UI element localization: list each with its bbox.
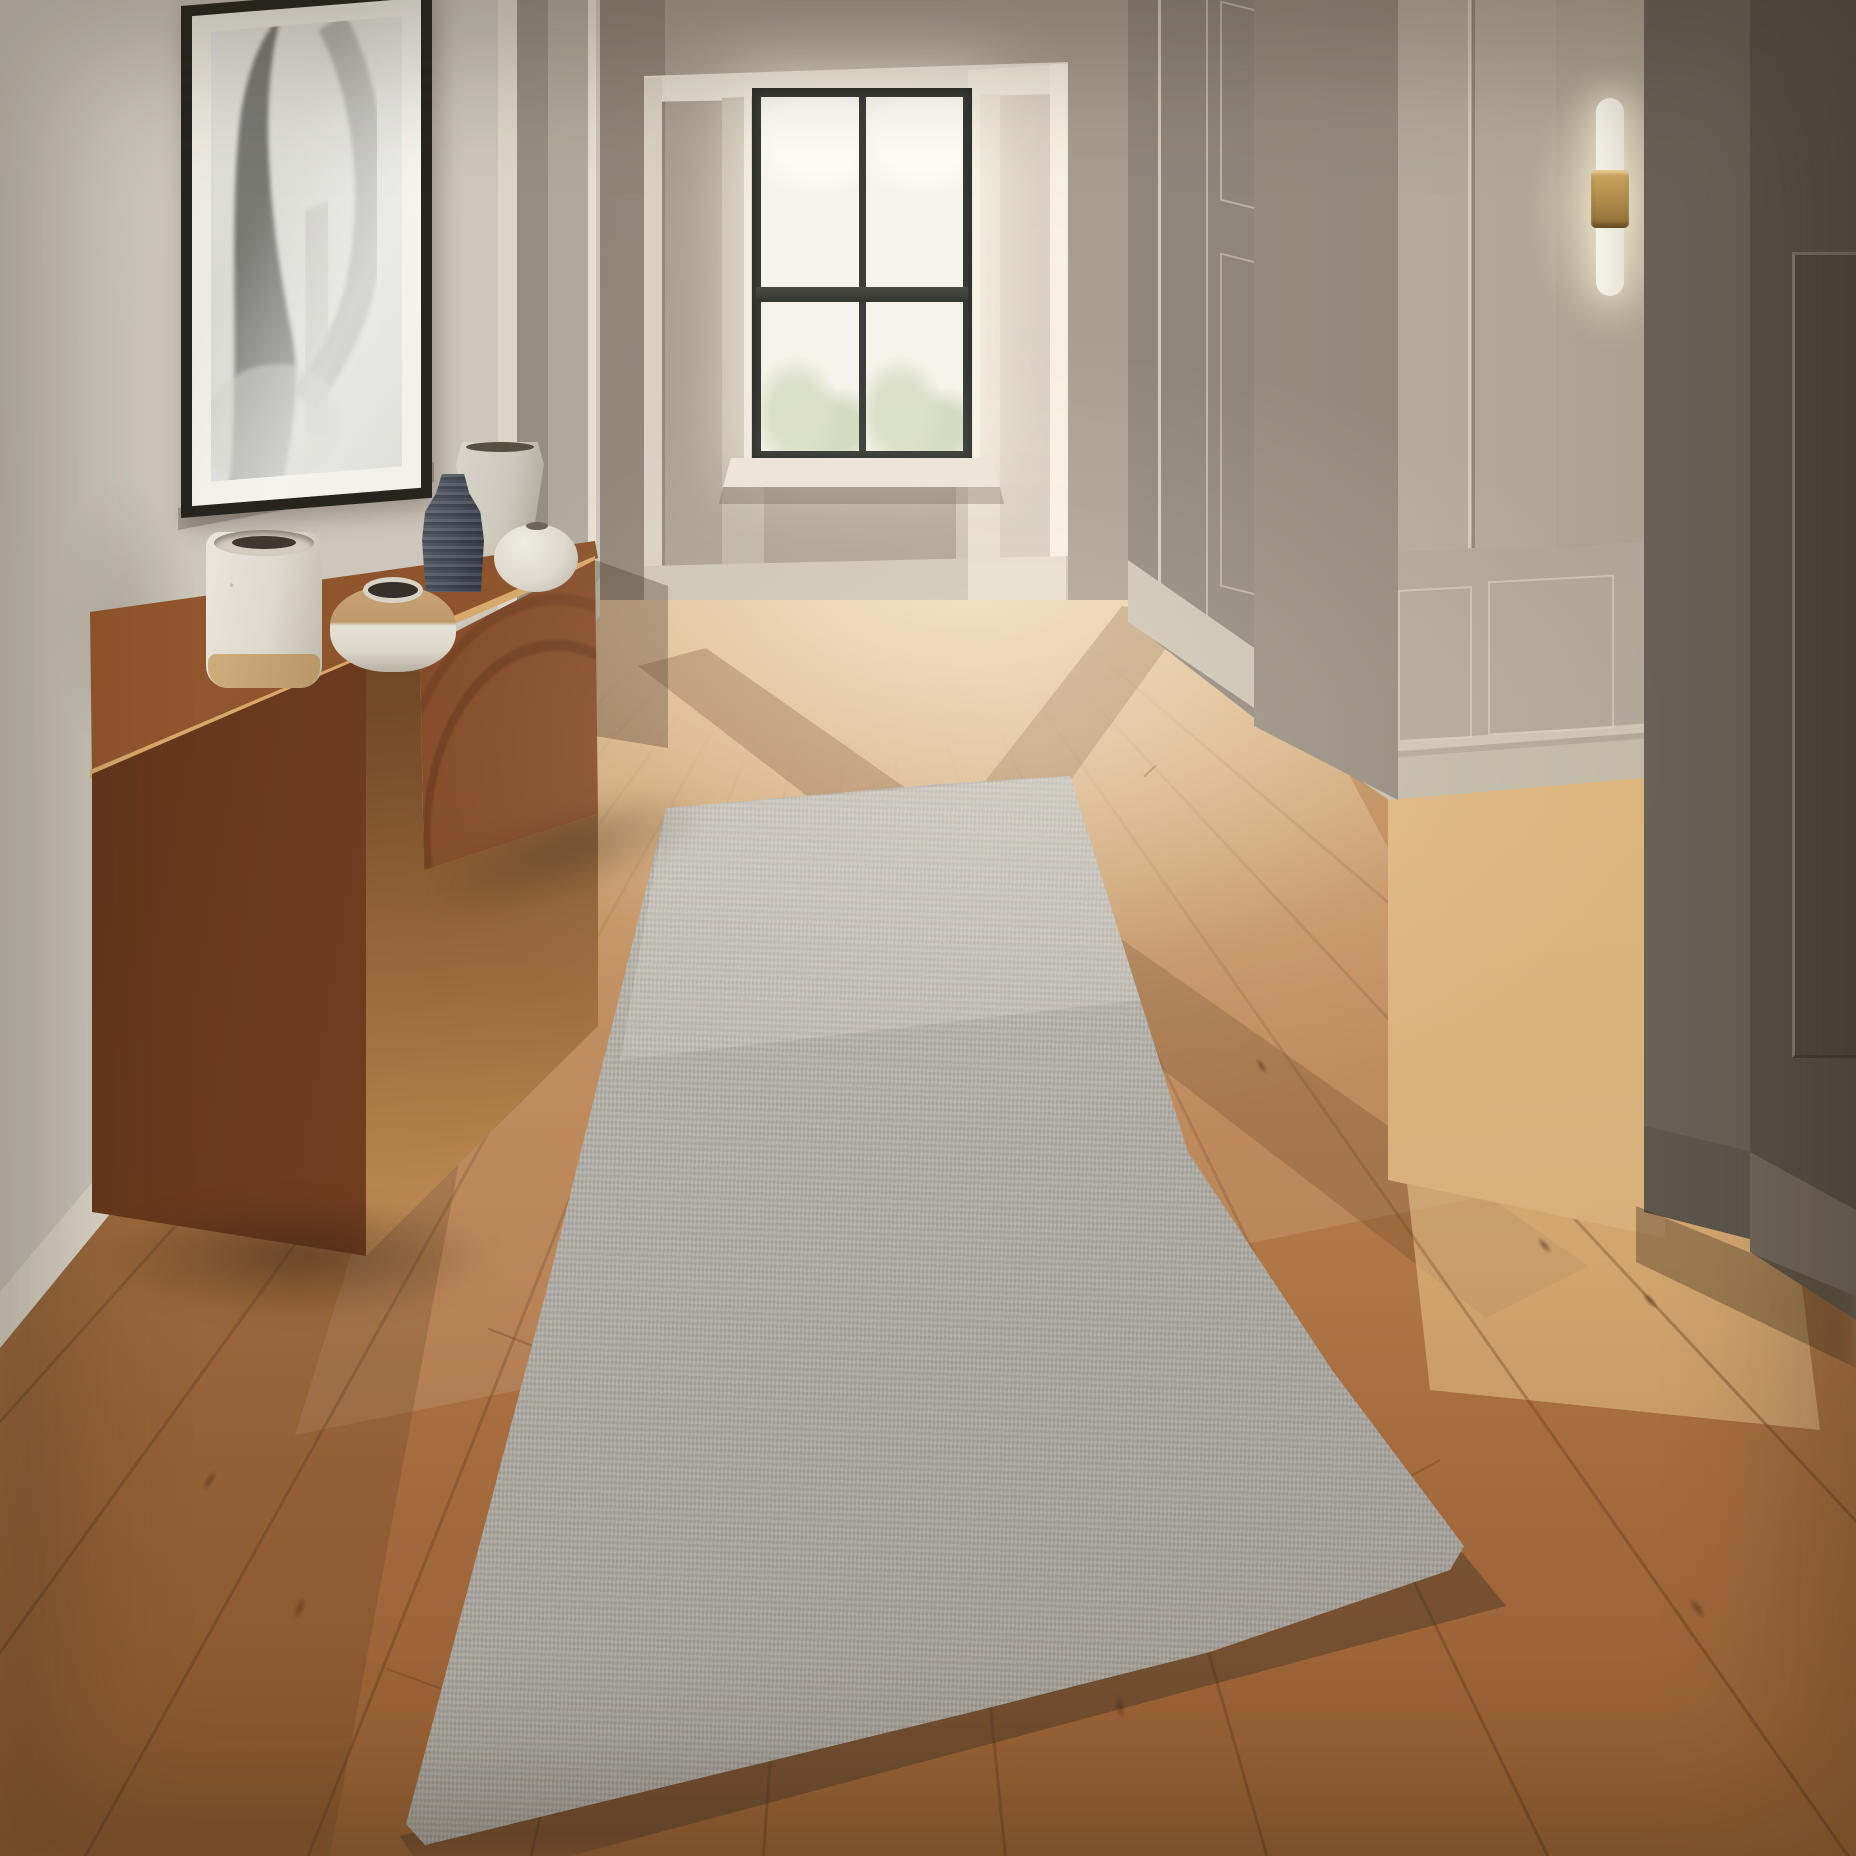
console-floor-shadow [96,1196,496,1316]
rug-block-i [977,1519,1021,1584]
rug-gap [751,1196,763,1197]
rug-block-i [807,1362,843,1422]
rug-block-i [943,1159,967,1206]
tall-cream-vase [206,532,322,688]
rug-gap [1017,1550,1036,1551]
rug-gap [918,1184,930,1185]
rug-gap [1020,1237,1035,1238]
window-casing-left [744,84,751,464]
rug-gap [954,1036,964,1037]
rug-block-s [869,1540,911,1596]
rug-gap [1157,1463,1178,1464]
rug-gap [800,1193,812,1194]
rug-gap [1056,1470,1077,1471]
rug-gap [998,1381,1013,1382]
rug-block-s [1142,1430,1182,1445]
rug-block-i [960,1125,986,1136]
rug-block-s [793,1247,821,1259]
rug-gap [908,1558,927,1559]
rug-row-blocks [681,1260,1189,1339]
rug-gap [989,1295,1004,1296]
rug-row-dashes [654,1425,1260,1479]
panel-stile-highlight [1158,0,1161,600]
rug-gap [868,1390,883,1391]
rug-gap [1056,1377,1071,1378]
rug-block-s [903,1028,923,1054]
vase-mouth [232,536,296,549]
rug-block-i [813,1530,856,1589]
rug-block-i [1050,1155,1074,1195]
rug-gap [986,1449,1006,1450]
rug-block-r [932,1072,957,1104]
rug-block-i [969,1354,998,1411]
rug-gap [882,1187,894,1188]
rug-block-i [1178,1454,1218,1469]
rug-gap [774,1490,795,1491]
rug-gap [831,1140,844,1141]
rug-gap [694,1495,715,1496]
rug-gap [915,1480,936,1481]
rug-gap [1036,1126,1049,1127]
rug-gap [893,1040,903,1041]
rug-gap [1127,1543,1146,1544]
rug-gap [882,1136,895,1137]
rug-gap [850,1458,870,1459]
rug-gap [1023,1126,1036,1127]
rug-gap [764,1255,779,1256]
rug-gap [1062,1234,1077,1235]
rug-block-i [1221,1425,1259,1440]
opening-reveal-line [1468,0,1471,548]
rug-gap [934,1133,947,1134]
rug-gap [771,1464,791,1465]
rug-block-g [857,1077,877,1109]
rug-block-i [1088,1116,1113,1127]
rug-gap [1108,1544,1127,1545]
rug-block-r [741,1289,773,1329]
rug-block-s [1050,1119,1075,1130]
rug-block-s [835,1169,859,1211]
rug-gap [821,1251,836,1252]
rug-gap [1123,1439,1143,1440]
rug-block-i [1238,1450,1278,1465]
rug-gap [1104,1287,1119,1288]
rug-gap [796,1395,811,1396]
rug-block-g [1000,1160,1028,1198]
rug-gap [742,1146,755,1147]
rug-block-i [681,1294,714,1331]
rug-gap [829,1460,849,1461]
rug-block-r [1269,1500,1317,1566]
rug-block-s [944,1275,978,1321]
rug-gap [1065,1443,1085,1444]
rug-block-i [735,1485,775,1500]
rug-gap [1076,1469,1097,1470]
rug-block-s [861,1032,884,1056]
rug-block-s [1181,1508,1218,1571]
rug-gap [1181,1435,1201,1436]
rug-block-i [809,1169,837,1207]
rug-gap [1128,1372,1143,1373]
rug-block-r [649,1491,695,1506]
rug-block-r [713,1142,742,1153]
rug-gap [853,1562,872,1563]
rug-gap [844,1139,857,1140]
rug-block-i [921,1024,944,1053]
rug-gap [721,1258,736,1259]
rug-block-s [1107,1150,1135,1192]
rug-block-s [857,1133,883,1144]
rug-block-i [964,1070,987,1100]
rug-gap [693,1469,713,1470]
rug-block-s [869,1449,909,1464]
rug-block-i [895,1130,921,1141]
rug-gap [690,1573,709,1574]
rug-block-i [875,1475,916,1490]
rug-block-i [738,1367,767,1424]
rug-gap [966,1450,986,1451]
rug-block-i [992,1233,1020,1245]
rug-gap [990,1179,1002,1180]
rug-block-s [788,1295,817,1332]
rug-gap [1217,1459,1238,1460]
window-pane [761,97,859,287]
rug-gap [863,1248,878,1249]
rug-gap [726,1313,741,1314]
rug-gap [882,1041,892,1042]
rug-gap [793,1143,806,1144]
rug-block-i [770,1083,789,1112]
rug-gap [947,1132,960,1133]
rug-block-i [1034,1230,1062,1242]
rug-block-s [1022,1070,1044,1097]
double-hung-window [752,88,972,460]
vase-body [330,586,456,672]
rug-gap [755,1145,768,1146]
rug-gap [832,1044,842,1045]
vase-body [494,524,578,592]
rug-gap [834,1486,855,1487]
rug-block-i [735,1251,764,1263]
rug-block-i [875,1078,897,1105]
rug-gap [963,1241,978,1242]
rug-block-i [994,1018,1014,1047]
rug-block-s [1004,1271,1033,1308]
rug-block-i [1071,1153,1100,1197]
squat-two-tone-vase [330,586,456,672]
rug-block-s [934,1237,963,1249]
rug-block-r [1044,1020,1069,1043]
rug-gap [1098,1172,1110,1173]
rug-row-dashes [649,1450,1272,1506]
rug-block-i [693,1254,722,1266]
rug-block-i [925,1357,954,1417]
vase-mouth [526,522,548,530]
rug-gap [671,1575,690,1576]
rug-block-i [768,1139,793,1150]
rug-gap [714,1494,735,1495]
rug-block-i [874,1280,903,1324]
rug-block-i [1168,1343,1202,1394]
rug-gap [895,1090,905,1091]
rug-gap [975,1296,990,1297]
vase-mouth [368,582,418,598]
foreground-panel-molding [1792,252,1856,1058]
framed-abstract-artwork [181,0,432,518]
rug-gap [996,1474,1017,1475]
rug-block-i [741,1539,784,1601]
rug-block-s [1051,1067,1073,1092]
rug-gap [931,1184,943,1185]
rug-block-s [812,1037,832,1060]
rug-gap [860,1304,875,1305]
rug-row-blocks [633,1498,1311,1612]
rug-block-i [892,1164,921,1208]
rug-block-i [894,1361,929,1415]
rug-block-s [956,1470,996,1485]
rug-block-i [1012,1348,1041,1402]
rug-block-s [998,1123,1024,1134]
rug-block-i [1133,1223,1162,1235]
rug-block-i [835,1244,863,1256]
rug-gap [931,1299,946,1300]
round-orb-vase [494,524,578,592]
rug-gap [799,1097,809,1098]
rug-row-blocks [703,1148,1135,1223]
rug-block-i [927,1445,967,1460]
rug-block-i [1072,1512,1109,1581]
rug-gap [1136,1464,1157,1465]
rug-block-i [901,1283,934,1320]
rug-gap [1014,1031,1024,1032]
rug-gap [789,1098,799,1099]
rug-block-i [1006,1440,1044,1455]
rug-block-s [702,1176,731,1220]
rug-gap [1075,1123,1088,1124]
rug-block-g [973,1021,996,1047]
rug-block-i [708,1537,745,1593]
rug-block-s [1091,1226,1120,1238]
rug-gap [760,1100,770,1101]
rug-gap [964,1035,974,1036]
rug-block-s [856,1165,885,1212]
rug-gap [1077,1233,1092,1234]
rug-block-i [1004,1067,1024,1099]
rug-block-s [1074,1266,1107,1305]
rug-gap [695,1402,710,1403]
rug-block-i [663,1373,698,1427]
brass-sconce [1591,170,1629,228]
rug-row-blocks [665,1335,1231,1435]
rug-gap [882,1389,897,1390]
artwork-glass-glare [192,0,421,506]
rug-gap [954,1384,969,1385]
rug-block-i [1160,1260,1194,1306]
rug-gap [905,1090,915,1091]
rug-gap [1119,1230,1134,1231]
hallway-photo [0,0,1856,1856]
window-pane [761,302,859,451]
rug-block-i [892,1240,921,1252]
rug-block-i [631,1543,675,1612]
rug-block-s [780,1532,817,1601]
rug-gap [995,1083,1005,1084]
window-pane [866,97,963,287]
rug-block-i [764,1366,800,1429]
rug-block-s [814,1284,847,1325]
rug-gap [943,1036,953,1037]
rug-block-i [1134,1262,1163,1304]
rug-block-i [1030,1271,1063,1312]
rug-block-i [1016,1465,1056,1480]
rug-gap [1026,1177,1038,1178]
rug-gap [921,1134,934,1135]
rug-block-s [915,1075,934,1104]
rug-block-i [839,1366,868,1417]
rug-gap [711,1314,726,1315]
rug-block-i [945,1531,982,1590]
rug-gap [845,1305,860,1306]
rug-gap [1061,1290,1076,1291]
rug-block-s [806,1136,831,1147]
rug-gap [1043,1080,1053,1081]
rug-block-i [708,1382,742,1433]
rug-gap [855,1484,876,1485]
rug-block-i [1099,1342,1129,1405]
rug-row-dashes [713,1117,1110,1154]
rug-gap [787,1194,799,1195]
rug-block-i [712,1460,752,1475]
rug-gap [878,1247,893,1248]
window-pane [866,302,963,451]
rug-gap [985,1129,998,1130]
rug-gap [977,1240,992,1241]
rug-gap [1218,1536,1237,1537]
rug-gap [920,1244,935,1245]
rug-block-s [1084,1434,1124,1449]
rug-gap [936,1478,957,1479]
rug-block-s [807,1081,830,1111]
rug-block-s [1096,1460,1137,1475]
rug-gap [847,1094,857,1095]
rug-block-i [1142,1507,1184,1563]
rug-block-s [654,1464,694,1479]
rug-block-s [795,1481,835,1496]
rug-block-i [1199,1341,1228,1398]
rug-block-g [720,1087,742,1114]
window-casing-right [973,84,980,464]
rug-block-s [1067,1344,1102,1401]
rug-gap [985,1084,995,1085]
rug-block-i [828,1082,847,1108]
rug-block-s [964,1165,992,1205]
rug-gap [778,1254,793,1255]
rug-gap [1041,1378,1056,1379]
rug-block-s [1025,1017,1045,1044]
rug-gap [908,1454,928,1455]
window-meeting-rail [756,287,968,302]
rug-block-i [763,1172,787,1219]
rug-gap [782,1048,792,1049]
rug-gap [1038,1176,1050,1177]
rug-block-g [741,1086,761,1116]
rug-block-g [728,1179,752,1217]
rug-block-s [1033,1521,1076,1583]
rug-block-g [1072,1065,1091,1094]
rug-gap [771,1048,781,1049]
vase-base [208,654,320,688]
panel-stile-highlight [1206,0,1208,652]
rug-gap [751,1465,771,1466]
ribbed-blue-bottle-vase [422,474,484,592]
rug-gap [1045,1445,1065,1446]
rug-gap [1119,1286,1134,1287]
vase-body [422,474,484,592]
rug-row-dashes [693,1223,1162,1266]
rug-gap [956,1086,966,1087]
vase-mouth [466,442,534,452]
rug-gap [927,1557,946,1558]
rug-block-i [791,1455,829,1470]
rug-row-blocks [721,1062,1090,1118]
rug-gap [773,1310,788,1311]
rug-gap [1201,1434,1221,1435]
rug-block-i [1142,1339,1171,1399]
rug-block-i [1236,1501,1273,1560]
